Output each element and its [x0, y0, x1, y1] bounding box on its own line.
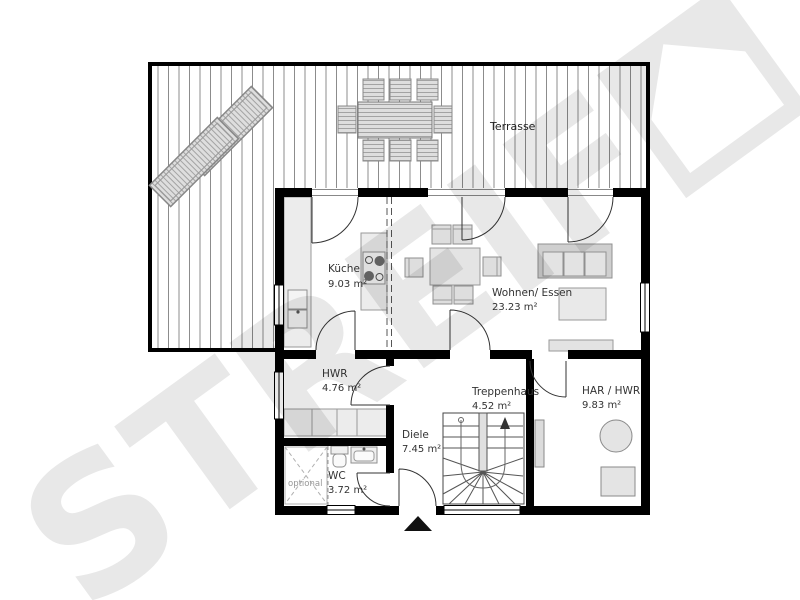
room-label-diele: Diele — [402, 429, 429, 441]
area-label-kueche: 9.03 m² — [328, 279, 367, 290]
room-label-wc: WC — [328, 470, 346, 482]
area-label-diele: 7.45 m² — [402, 444, 441, 455]
entrance-arrow-icon — [404, 516, 432, 531]
window-hwr-icon — [275, 372, 284, 419]
room-label-terrasse: Terrasse — [489, 120, 536, 133]
room-label-wohnen-essen: Wohnen/ Essen — [492, 287, 572, 299]
window-stair-icon — [444, 506, 520, 515]
equipment-box-icon — [601, 467, 635, 496]
washbasin-icon — [351, 447, 377, 463]
kitchen-counter — [284, 197, 311, 347]
optional-label: optional — [288, 479, 322, 489]
sideboard-icon — [549, 340, 613, 351]
room-label-kueche: Küche — [328, 263, 360, 275]
area-label-treppenhaus: 4.52 m² — [472, 401, 511, 412]
room-label-treppenhaus: Treppenhaus — [471, 386, 539, 398]
kitchen-island — [361, 233, 387, 310]
floorplan-drawing: Terrasse — [0, 0, 800, 600]
dining-table-icon — [430, 248, 480, 285]
heater-icon — [535, 420, 544, 467]
window-wc-icon — [327, 506, 355, 515]
room-label-hwr: HWR — [322, 368, 348, 380]
hwr-counter — [284, 409, 387, 436]
area-label-har-hwr: 9.83 m² — [582, 400, 621, 411]
terrace-table-icon — [358, 102, 432, 138]
toilet-icon — [331, 446, 348, 467]
window-living-icon — [641, 283, 650, 332]
area-label-wohnen-essen: 23.23 m² — [492, 302, 538, 313]
window-kitchen-icon — [275, 285, 284, 325]
room-label-har-hwr: HAR / HWR — [582, 385, 640, 397]
area-label-wc: 3.72 m² — [328, 485, 367, 496]
area-label-hwr: 4.76 m² — [322, 383, 361, 394]
floorplan: Terrasse — [0, 0, 800, 600]
staircase-icon — [443, 413, 524, 504]
tank-icon — [600, 420, 632, 452]
sofa-icon — [538, 244, 612, 278]
kitchen-sink-icon — [288, 290, 307, 309]
